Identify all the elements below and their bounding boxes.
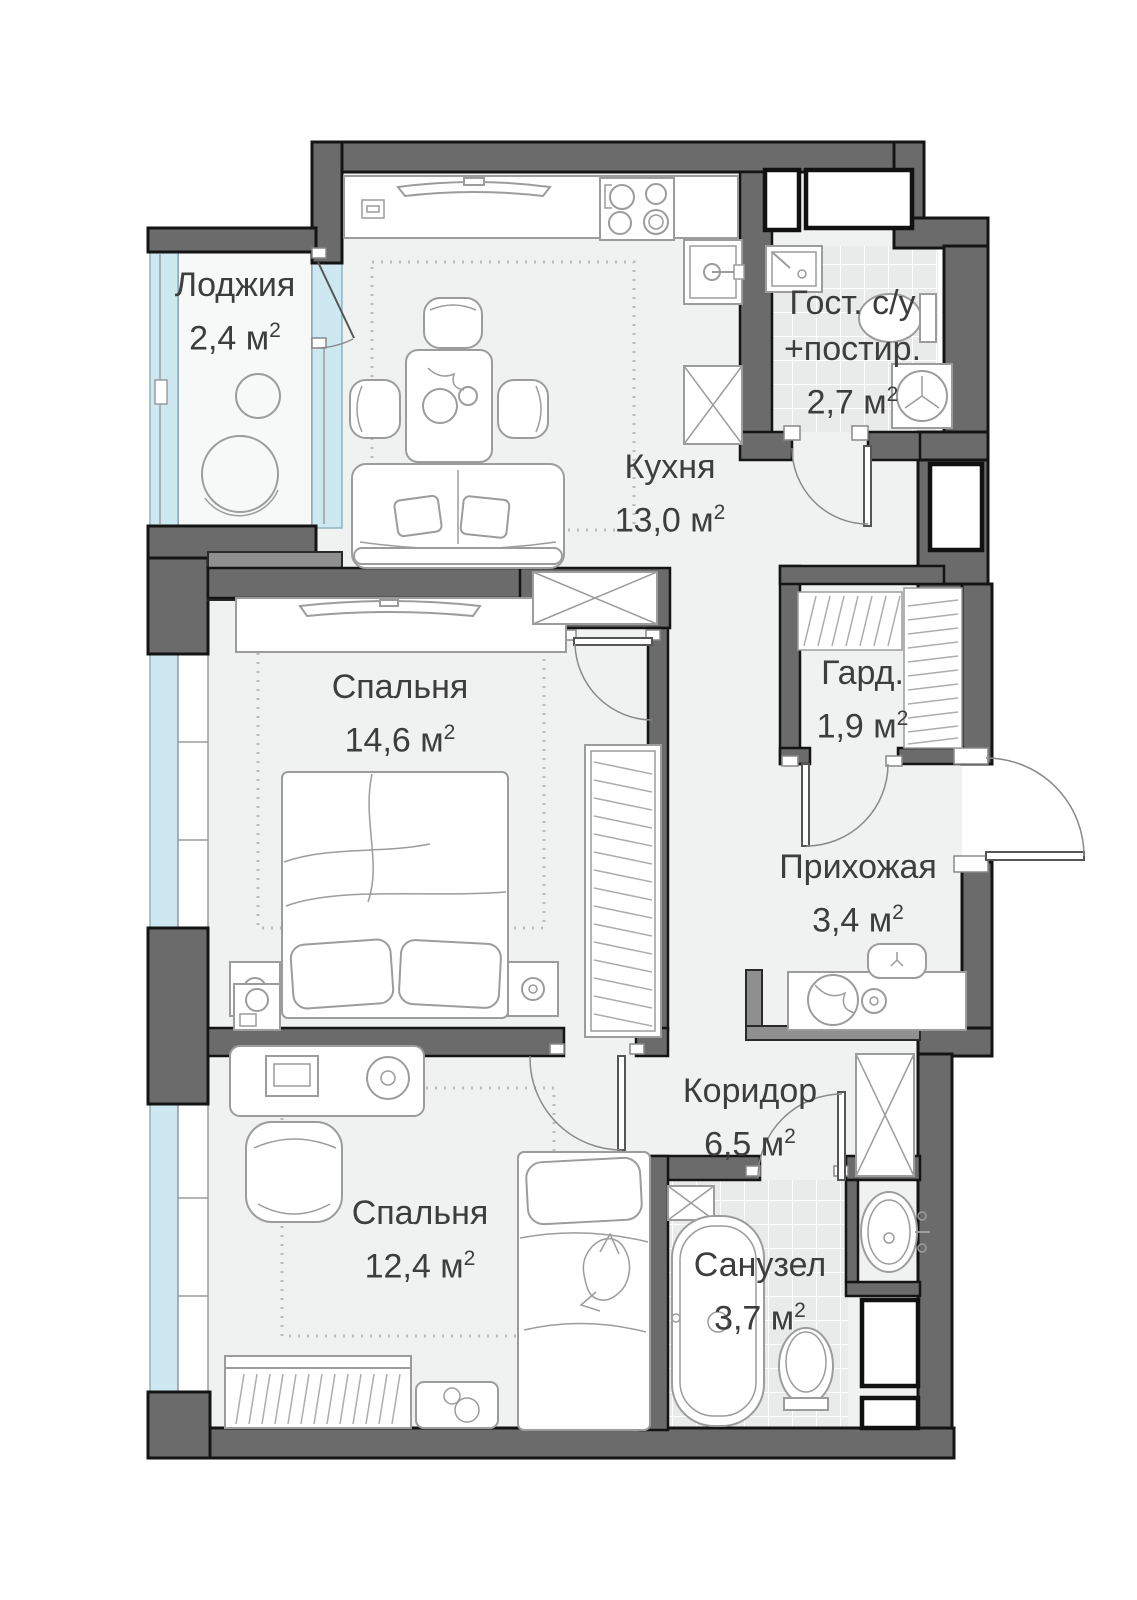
- desk-chair-icon: [246, 1122, 342, 1222]
- sofa-icon: [352, 464, 564, 568]
- single-bed-icon: [518, 1152, 650, 1430]
- bathtub-icon: [672, 1216, 764, 1426]
- stove-icon: [600, 178, 674, 240]
- guest-toilet-icon: [859, 294, 936, 342]
- bedroom2-nightstand-icon: [416, 1382, 498, 1428]
- tv-cabinet-icon: [236, 598, 566, 652]
- corridor-cabinet-icon: [856, 1054, 914, 1176]
- floor-plan-drawing: [0, 0, 1137, 1600]
- toilet-icon: [779, 1328, 833, 1410]
- stool-icon: [868, 944, 926, 978]
- vent-x-icon: [668, 1186, 714, 1220]
- built-in-closet-icon: [533, 572, 657, 624]
- floor-plan: Лоджия 2,4 м2 Кухня 13,0 м2 Гост. с/у +п…: [0, 0, 1137, 1600]
- bedside-caddy-icon: [234, 984, 280, 1030]
- console-table-icon: [788, 972, 966, 1030]
- bedroom2-wardrobe-icon: [225, 1356, 411, 1428]
- desk-icon: [230, 1046, 424, 1116]
- tall-wardrobe-icon: [585, 745, 661, 1037]
- washing-machine-icon: [892, 364, 952, 428]
- guest-bath-sink-icon: [766, 246, 822, 292]
- kitchen-sink-icon: [690, 246, 744, 298]
